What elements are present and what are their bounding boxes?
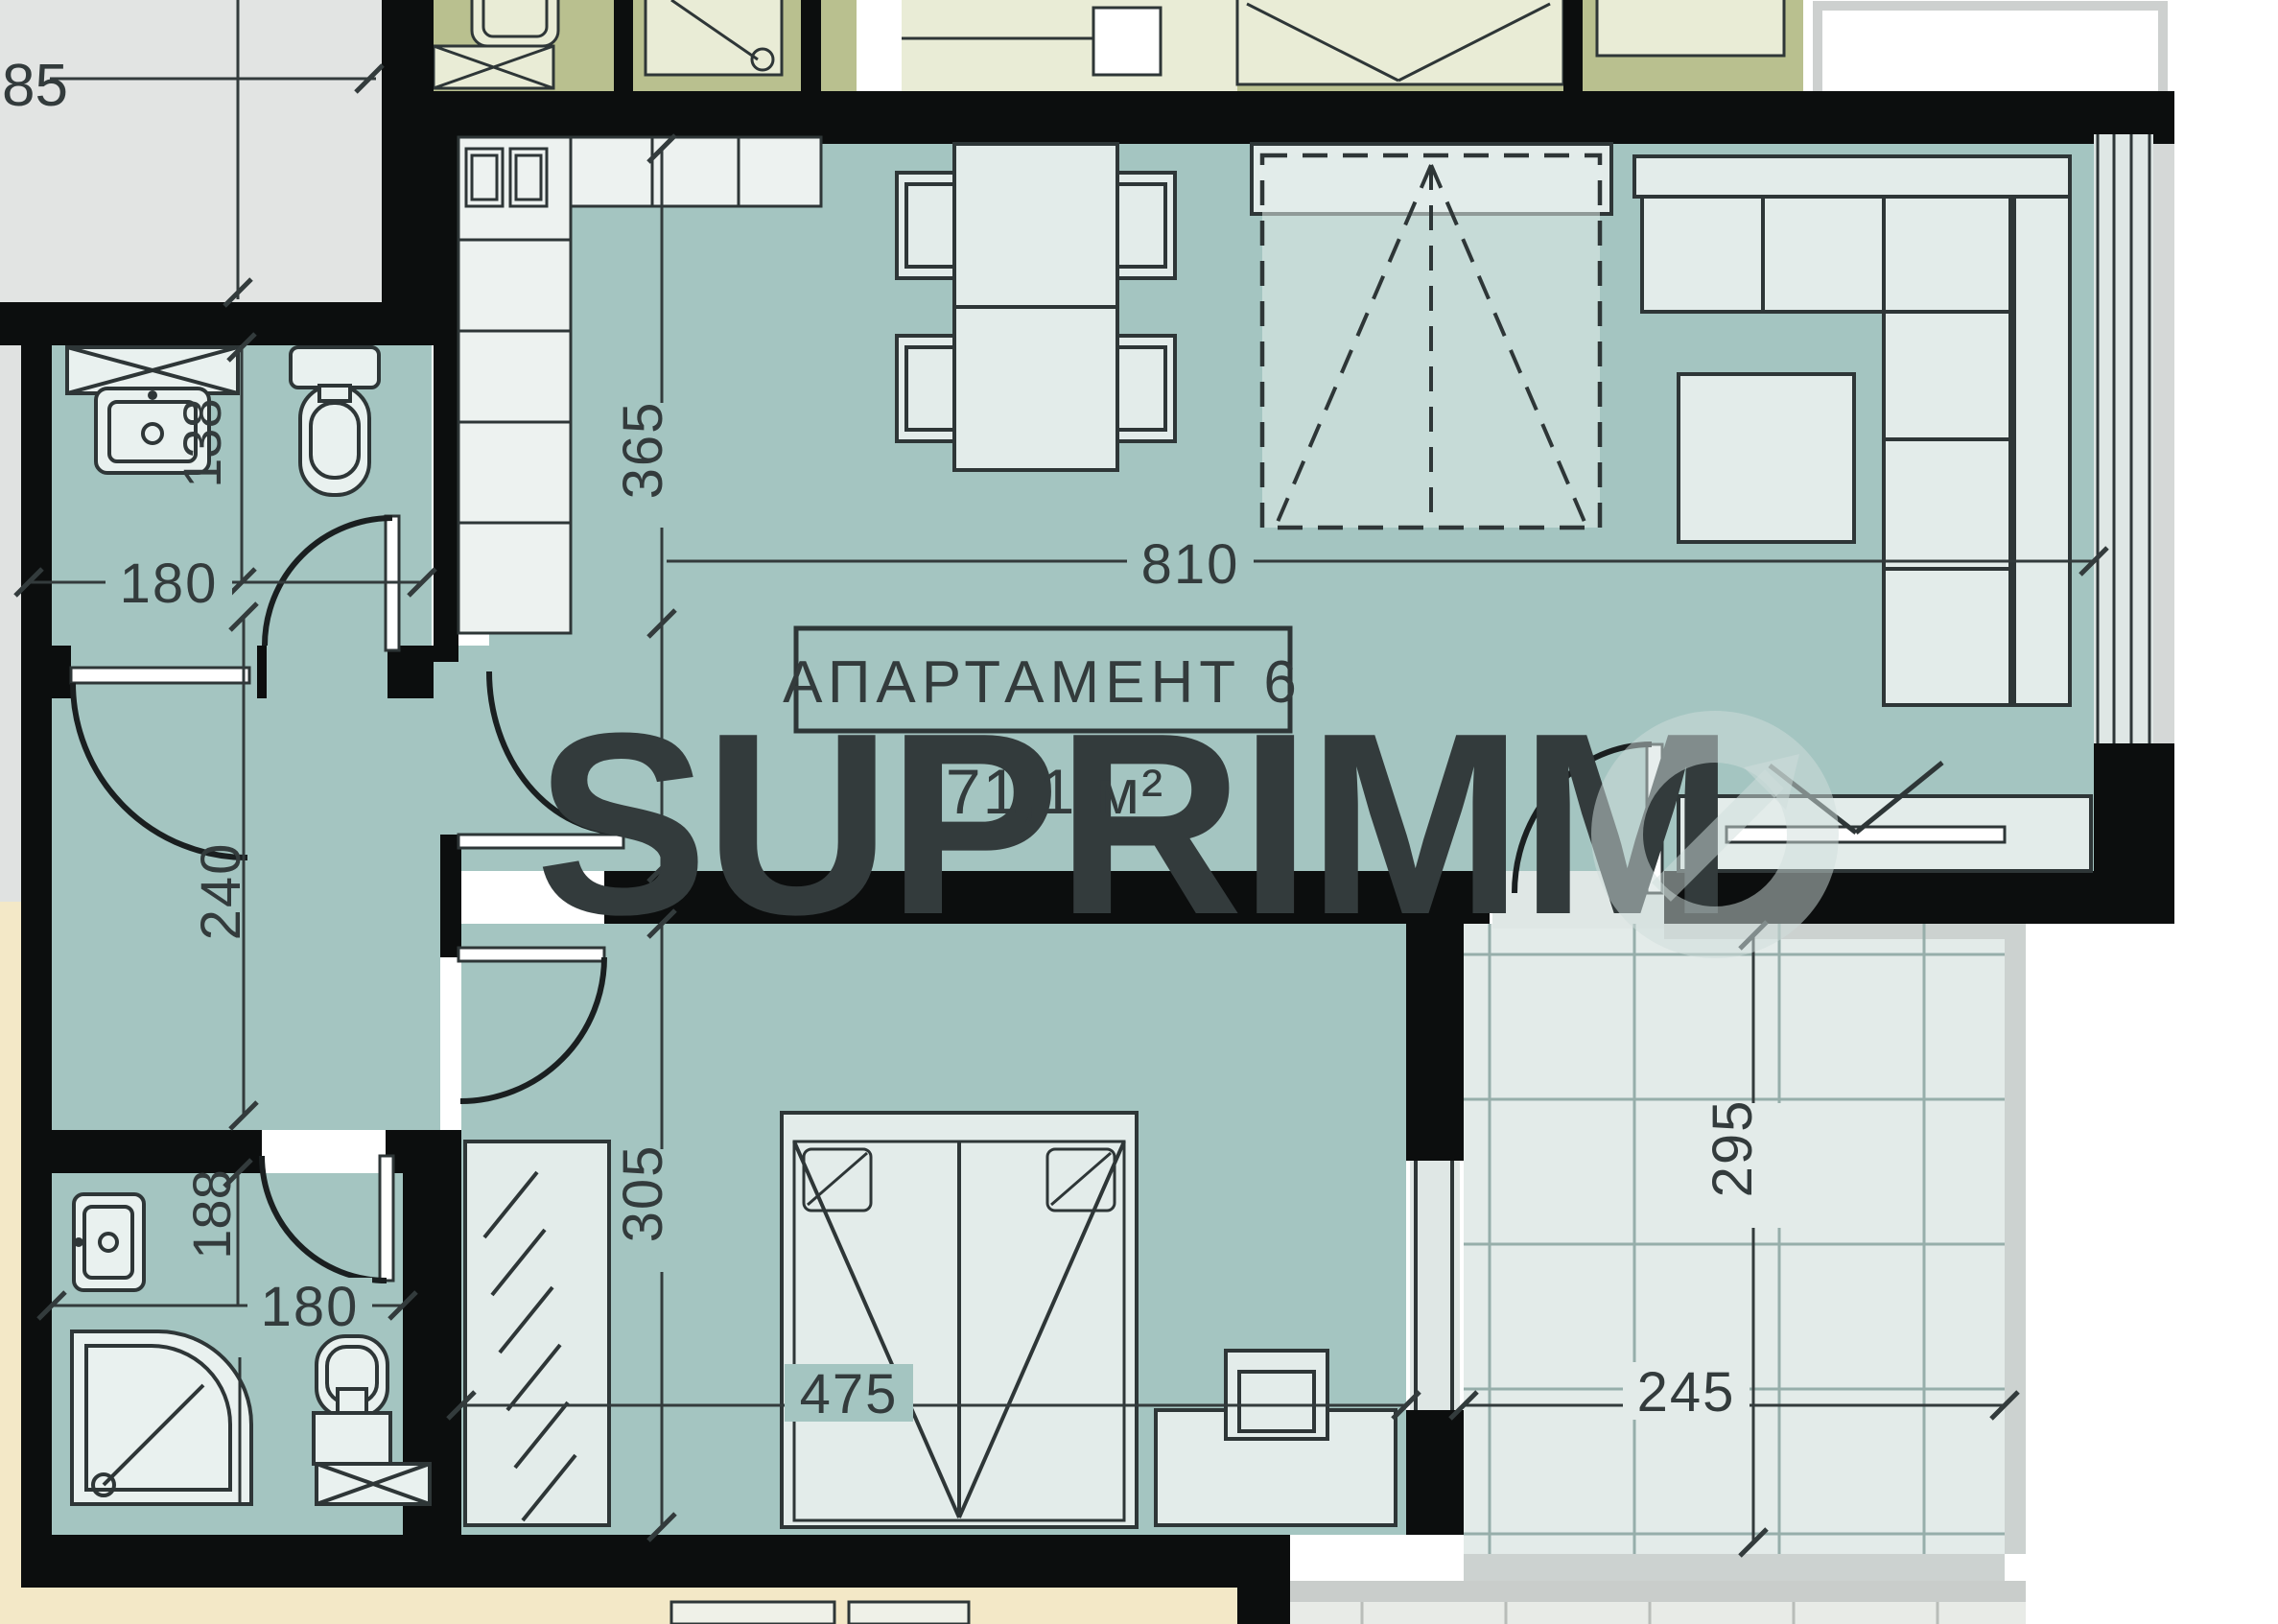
wall-entry-c: [387, 646, 434, 698]
sofa-seat: [1884, 312, 2010, 439]
sink-faucet: [148, 390, 157, 400]
lower-balcony-tiles: [1290, 1602, 2026, 1624]
bottom-neighbor-beige: [0, 1588, 1237, 1624]
watermark: SUPRIMM: [535, 680, 1813, 969]
floor-plan-page: SUPRIMM 85 365 810 138 180 240 188 180 3…: [0, 0, 2278, 1624]
apartment-label: АПАРТАМЕНТ 6: [783, 649, 1303, 716]
balcony-south-rail: [1464, 1554, 2005, 1581]
wall-common-east: [382, 0, 434, 345]
kitchen-sink-left-basin: [472, 155, 497, 200]
neighbor-bed: [1237, 0, 1563, 84]
sink-faucet: [74, 1237, 83, 1247]
wall-entry-b: [257, 646, 267, 698]
dining-chair-seat: [906, 347, 954, 430]
floor-plan-drawing: SUPRIMM 85 365 810 138 180 240 188 180 3…: [0, 0, 2278, 1624]
sink-basin: [84, 1207, 132, 1278]
kitchen-sink-right-basin: [516, 155, 541, 200]
bathroom-bottom-door-leaf: [380, 1156, 393, 1281]
wall-west: [21, 302, 52, 1535]
toilet-bowl-inner: [311, 403, 359, 478]
wall-bottom-jog: [1237, 1535, 1290, 1624]
toilet-tank: [314, 1413, 390, 1464]
outer-strip-gray: [0, 302, 21, 902]
sofa-corner-seat: [1884, 197, 2010, 312]
fold-down-bed: [1252, 144, 1611, 528]
sofa-back-top: [1634, 156, 2070, 197]
toilet-hinge: [338, 1389, 366, 1414]
wall-entry-a: [21, 646, 71, 698]
wall-neighbor-divider: [801, 0, 821, 91]
bottom-neighbor-furniture: [849, 1602, 969, 1624]
coffee-table: [1679, 374, 1854, 542]
entrance-door-leaf: [71, 668, 249, 683]
area-label: 71,1 м²: [946, 756, 1164, 827]
neighbor-door-gap: [857, 0, 902, 91]
sofa-seat: [1884, 439, 2010, 569]
dim-label-295: 295: [1702, 1099, 1764, 1198]
neighbor-chair-seat: [483, 0, 547, 36]
dining-chair-seat: [1117, 184, 1165, 267]
wardrobe: [465, 1142, 609, 1525]
wall-neighbor-divider: [1563, 0, 1583, 91]
dim-label-305: 305: [612, 1144, 674, 1243]
neighbor-cabinet: [1597, 0, 1784, 56]
sofa-seat: [1763, 197, 1884, 312]
wall-bedroom-door-jamb: [440, 835, 461, 957]
bottom-neighbor-furniture: [671, 1602, 834, 1624]
toilet-hinge: [319, 386, 350, 401]
lower-balcony-trim: [1290, 1581, 2026, 1602]
wall-bathroom2-north-a: [52, 1130, 262, 1173]
wall-bottom: [21, 1535, 1290, 1588]
wall-kitchen-west: [434, 144, 458, 662]
dim-label-188: 188: [181, 1169, 242, 1259]
dim-label-365: 365: [612, 401, 674, 500]
balcony-east-rail: [2005, 924, 2026, 1554]
toilet-tank: [291, 347, 379, 388]
common-area-floor: [0, 0, 382, 302]
sill-glass-slot: [1726, 827, 2005, 842]
dim-label-180-bottom: 180: [261, 1276, 360, 1338]
dim-label-138: 138: [172, 398, 232, 487]
dim-label-180-top: 180: [120, 553, 219, 615]
wall-common-south: [0, 302, 434, 345]
shower-enclosure: [72, 1331, 251, 1504]
wall-bedroom-east-bottom: [1406, 1410, 1464, 1535]
neighbor-room-pale: [902, 0, 1237, 91]
wall-se-corner: [2094, 743, 2174, 924]
outer-strip-beige: [0, 902, 21, 1624]
sofa-seat: [1642, 197, 1763, 312]
kitchen-counter-column: [458, 137, 571, 633]
sofa-seat: [1884, 569, 2010, 705]
wall-neighbor-divider: [614, 0, 633, 91]
living-window-band: [2094, 134, 2153, 743]
dining-chair-seat: [906, 184, 954, 267]
neighbor-cabinet: [1093, 8, 1161, 75]
kitchen-counter-top: [571, 137, 821, 206]
dim-label-810: 810: [1141, 533, 1240, 596]
dim-label-245: 245: [1637, 1361, 1736, 1424]
dim-label-475: 475: [800, 1363, 899, 1425]
dim-label-85: 85: [2, 53, 68, 119]
neighbor-desk: [646, 0, 782, 75]
dim-label-240: 240: [190, 842, 252, 941]
sofa-back-right: [2014, 197, 2070, 705]
dining-chair-seat: [1117, 347, 1165, 430]
